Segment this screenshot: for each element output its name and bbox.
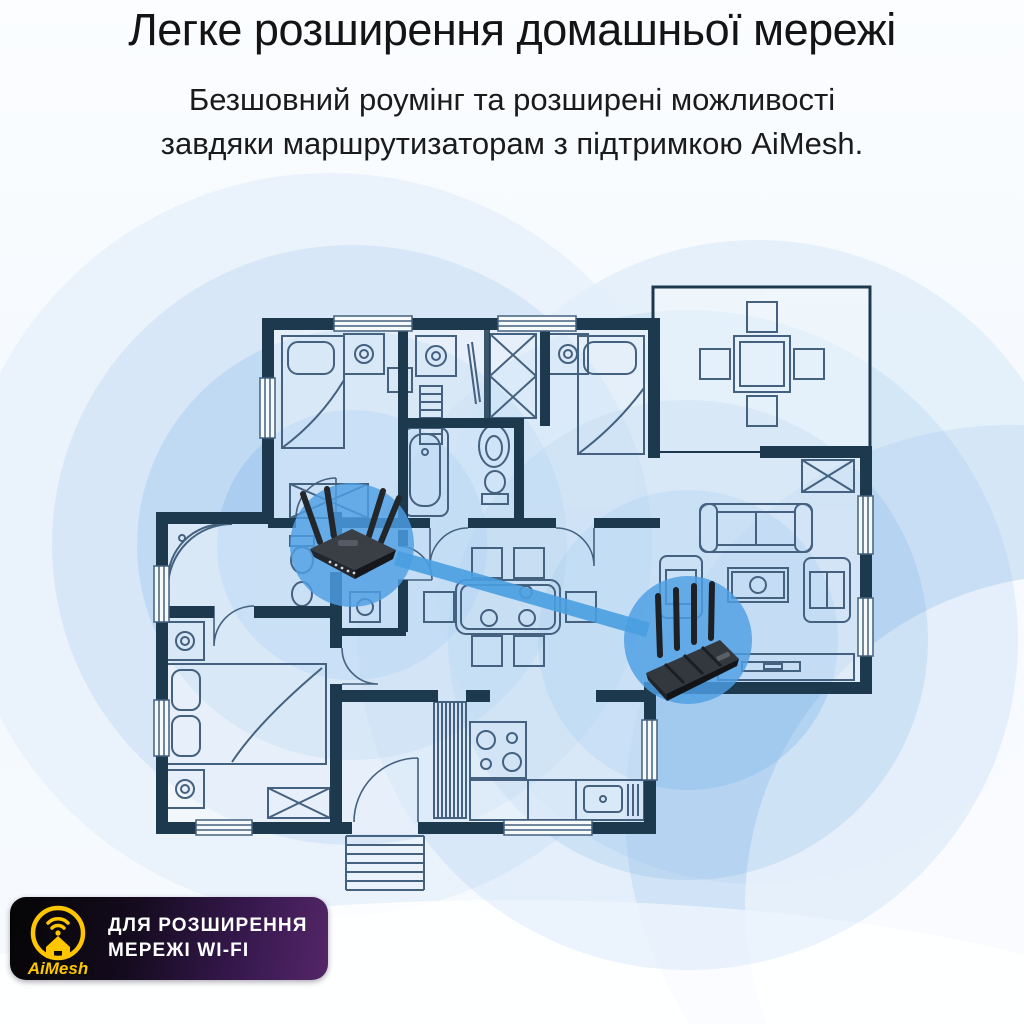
window-icon <box>858 496 873 554</box>
window-icon <box>154 566 169 622</box>
badge-label: ДЛЯ РОЗШИРЕННЯ МЕРЕЖІ WI-FI <box>106 914 308 963</box>
sofa-icon <box>700 504 812 552</box>
window-icon <box>858 598 873 656</box>
window-icon <box>642 720 657 780</box>
window-icon <box>498 316 576 331</box>
subtitle-line-1: Безшовний роумінг та розширені можливост… <box>52 78 972 122</box>
promo-image: Легке розширення домашньої мережі Безшов… <box>0 0 1024 1024</box>
aimesh-logo: AiMesh <box>10 897 106 980</box>
aimesh-logo-icon: AiMesh <box>10 897 106 980</box>
window-icon <box>504 820 592 835</box>
window-icon <box>334 316 412 331</box>
window-icon <box>154 700 169 756</box>
aimesh-logo-text: AiMesh <box>27 959 88 978</box>
subtitle-line-2: завдяки маршрутизаторам з підтримкою AiM… <box>52 122 972 166</box>
window-icon <box>196 820 252 835</box>
badge-label-line-1: ДЛЯ РОЗШИРЕННЯ <box>108 914 308 939</box>
badge-label-line-2: МЕРЕЖІ WI-FI <box>108 939 308 964</box>
header: Легке розширення домашньої мережі Безшов… <box>0 0 1024 166</box>
window-icon <box>260 378 275 438</box>
aimesh-badge: AiMesh ДЛЯ РОЗШИРЕННЯ МЕРЕЖІ WI-FI <box>10 897 328 980</box>
page-title: Легке розширення домашньої мережі <box>0 4 1024 56</box>
page-subtitle: Безшовний роумінг та розширені можливост… <box>52 78 972 166</box>
stairs-icon <box>346 836 424 890</box>
pantry-shelves-icon <box>434 702 466 818</box>
